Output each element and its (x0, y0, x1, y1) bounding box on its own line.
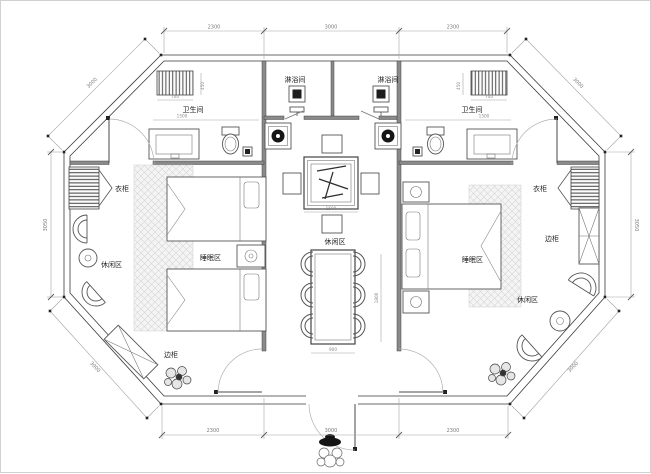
dim-top-center: 3000 (325, 25, 338, 31)
label-wardrobe-right: 衣柜 (533, 184, 547, 193)
right-side-cabinet (579, 208, 599, 264)
dim-bath-right-w: 1500 (479, 114, 490, 119)
dim-right-side: 3050 (633, 219, 639, 232)
dim-bottom-center: 3000 (325, 428, 338, 434)
left-wardrobe (69, 167, 112, 209)
right-plant (489, 363, 516, 386)
left-bed-2 (167, 269, 266, 331)
left-bed-1 (167, 177, 266, 241)
left-armchair-2 (76, 282, 105, 312)
tea-stool-bottom (322, 215, 342, 233)
left-bath-cabinet (157, 71, 193, 95)
left-plant (165, 367, 192, 390)
left-bath-door (106, 116, 154, 164)
tea-stool-left (283, 173, 301, 194)
floor-plan-drawing: 2300 3000 2300 2300 3000 2300 3050 3050 (1, 1, 651, 474)
dining-table (301, 250, 365, 344)
tea-stool-top (322, 135, 342, 153)
label-shower-left: 淋浴间 (285, 75, 306, 84)
dim-cab-right-w: 700 (485, 94, 493, 99)
left-bedroom-door (214, 349, 262, 394)
right-bath-door (512, 116, 558, 164)
dim-dining-h: 1800 (374, 292, 379, 303)
label-sleep-left: 睡眠区 (200, 254, 221, 262)
dim-cab-left-w: 700 (171, 94, 179, 99)
floor-plan-canvas: 2300 3000 2300 2300 3000 2300 3050 3050 (0, 0, 651, 473)
washbasin-left (265, 123, 291, 149)
right-armchair-1 (568, 267, 601, 296)
right-bedroom-door (399, 349, 447, 394)
label-sleep-right: 睡眠区 (462, 256, 483, 264)
dim-left: 3050 (43, 149, 62, 300)
label-leisure-center: 休闲区 (325, 237, 346, 246)
shower-rooms (285, 86, 389, 119)
right-nightstand-1 (403, 182, 429, 202)
right-side-table (550, 311, 570, 331)
entrance-opening (306, 395, 358, 405)
dim-bottom-right: 2300 (447, 428, 460, 434)
right-nightstand-2 (403, 291, 429, 313)
dim-left-side: 3050 (43, 219, 49, 232)
left-floor-drain (243, 147, 252, 156)
dim-top-left: 2300 (208, 25, 221, 31)
dim-tea-table-w: 1500 (326, 206, 337, 211)
left-toilet (222, 127, 239, 154)
dim-diag-bl: 3000 (88, 361, 101, 374)
label-leisure-left: 休闲区 (101, 260, 122, 269)
shower-right-head (374, 107, 388, 116)
right-bathroom (413, 71, 517, 159)
dim-dining-w: 900 (329, 347, 337, 352)
dim-diag-tl: 3000 (86, 77, 99, 90)
right-floor-drain (413, 147, 422, 156)
dim-diag-br: 3000 (567, 361, 580, 374)
label-bath-left: 卫生间 (183, 105, 204, 114)
tea-stool-right (361, 173, 379, 194)
dim-right: 3050 (607, 149, 639, 300)
dim-top-right: 2300 (447, 25, 460, 31)
right-bath-cabinet (471, 71, 507, 95)
dim-diag-tr: 3000 (571, 77, 584, 90)
label-shower-right: 淋浴间 (378, 75, 399, 84)
washbasin-right (375, 123, 401, 149)
label-bath-right: 卫生间 (462, 105, 483, 114)
dim-cab-left-h: 450 (200, 82, 205, 90)
entry-statue (317, 434, 344, 467)
shower-right-drain (373, 86, 389, 102)
left-armchair-1 (73, 215, 87, 243)
right-wardrobe (558, 167, 599, 209)
label-sidecab-right: 边柜 (545, 234, 559, 243)
right-toilet (427, 127, 444, 154)
label-wardrobe-left: 衣柜 (115, 184, 129, 193)
dim-cab-right-h: 450 (456, 82, 461, 90)
left-bath-vanity (149, 129, 199, 159)
right-double-bed (402, 204, 501, 289)
label-leisure-right: 休闲区 (517, 295, 538, 304)
dim-top: 2300 3000 2300 (161, 25, 510, 60)
left-side-table (79, 249, 97, 267)
dim-bath-left-w: 1500 (177, 114, 188, 119)
left-nightstand (237, 245, 265, 267)
dim-bottom-left: 2300 (207, 428, 220, 434)
shower-left-drain (289, 86, 305, 102)
tea-table (283, 135, 379, 233)
label-sidecab-left: 边柜 (164, 350, 178, 359)
right-bath-vanity (467, 129, 517, 159)
